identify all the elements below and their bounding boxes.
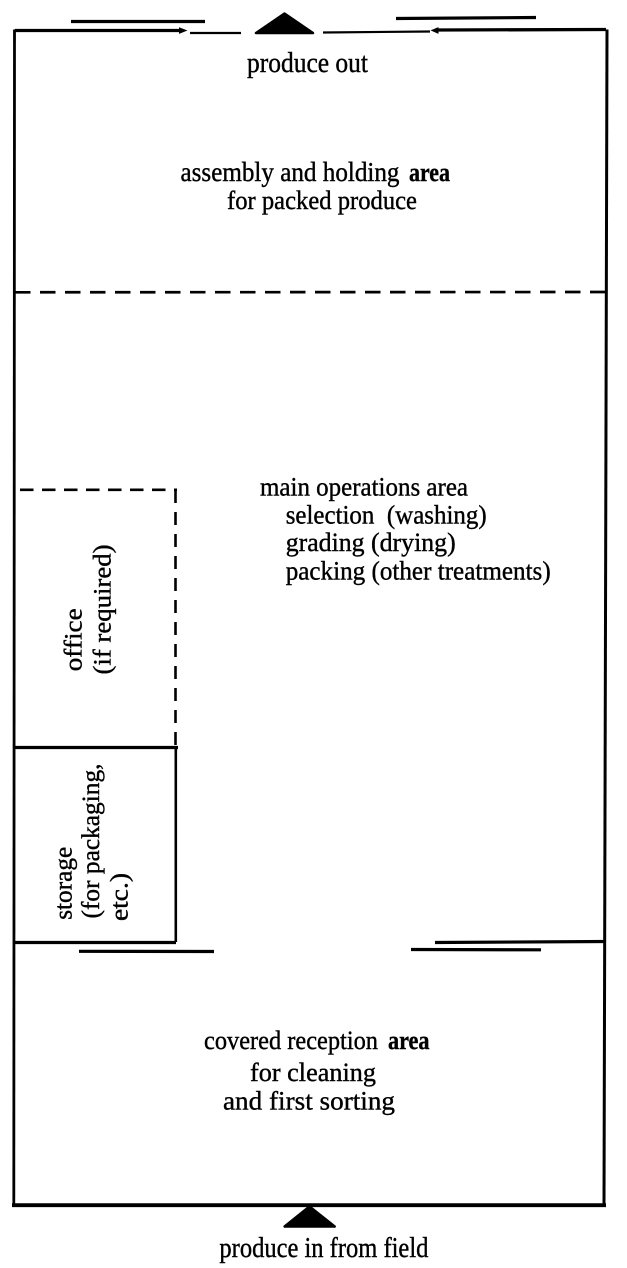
svg-text:office: office bbox=[61, 608, 88, 671]
svg-text:area: area bbox=[388, 1025, 430, 1055]
svg-text:selection (washing): selection (washing) bbox=[286, 501, 487, 530]
svg-text:for cleaning: for cleaning bbox=[250, 1058, 376, 1087]
svg-text:(for packaging,: (for packaging, bbox=[78, 764, 105, 919]
svg-text:produce out: produce out bbox=[247, 48, 368, 79]
svg-text:area: area bbox=[409, 158, 450, 187]
svg-text:and first sorting: and first sorting bbox=[223, 1087, 395, 1116]
svg-text:covered reception: covered reception bbox=[204, 1025, 378, 1055]
svg-text:main operations area: main operations area bbox=[260, 473, 468, 502]
svg-text:grading (drying): grading (drying) bbox=[286, 528, 456, 557]
svg-text:(if required): (if required) bbox=[90, 545, 117, 675]
svg-text:packing (other treatments): packing (other treatments) bbox=[286, 557, 551, 586]
svg-text:storage: storage bbox=[51, 847, 78, 920]
svg-text:etc.): etc.) bbox=[106, 873, 133, 921]
svg-text:produce in from field: produce in from field bbox=[219, 1233, 428, 1264]
svg-text:assembly and holding: assembly and holding bbox=[181, 157, 400, 187]
svg-text:for packed produce: for packed produce bbox=[227, 185, 417, 215]
